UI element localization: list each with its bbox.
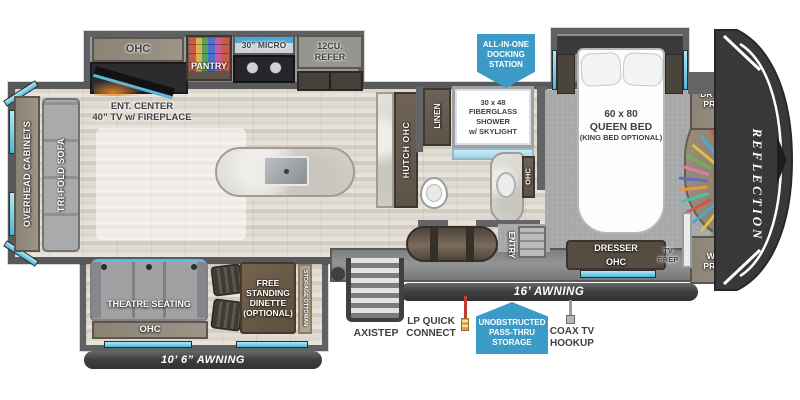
lp-connector-icon [461,318,469,331]
sink-faucet-icon [284,169,289,174]
theatre-cupholder-icon [101,264,107,270]
wall-hutch-bath [416,86,423,152]
shower [452,86,534,148]
bedroom-steps [518,226,546,258]
linen-cabinet [423,88,451,146]
theatre-divider-icon [132,262,135,318]
awning-living-bar: 10’ 6” AWNING [84,351,322,369]
front-cap [680,18,800,302]
pass-thru-badge: UNOBSTRUCTED PASS-THRU STORAGE [476,302,548,354]
bed-slide-window-left-icon [552,50,557,90]
tri-fold-sofa [42,98,80,252]
docking-station-badge: ALL-IN-ONE DOCKING STATION [477,34,535,88]
dinette-table [240,262,296,334]
nightstand-left [557,54,575,94]
coax-connector-icon [566,315,575,324]
pillow-right-icon [622,52,664,87]
dresser-window-icon [580,270,656,278]
theatre-divider2-icon [163,262,166,318]
vanity-sink-icon [496,172,516,198]
axistep-handle-icon [331,267,345,281]
toilet-seat-icon [426,184,442,202]
rv-floorplan: OVERHEAD CABINETS TRI-FOLD SOFA OHC ENT.… [0,0,800,400]
hutch-cabinet [394,92,418,208]
awning-main-bar: 16’ AWNING [400,283,698,301]
refrigerator-drawers-icon [297,71,363,91]
overhead-cabinets [14,96,40,252]
living-ohc-cabinet [92,321,208,339]
theatre-cupholder3-icon [191,264,197,270]
refrigerator [297,35,363,69]
dresser [566,240,666,270]
lp-quick-connect-label: LP QUICK CONNECT [396,314,466,342]
living-window-right-icon [236,341,308,348]
pillow-left-icon [580,52,622,87]
theatre-armrest-right-icon [197,262,206,318]
awning-main-label: 16’ AWNING [514,286,585,298]
lp-leader-line-icon [464,296,467,320]
storage-ottoman [298,264,312,334]
pantry-shelves-icon [189,38,229,72]
fireplace-glow-icon [94,80,142,96]
kitchen-ohc-cabinet [92,37,184,62]
theatre-cupholder2-icon [146,264,152,270]
hutch-counter [376,92,394,208]
entry-cabinet-band-icon [430,228,438,260]
entry-cabinet [406,226,498,262]
range-cooktop [233,55,295,83]
theatre-armrest-left-icon [92,262,101,318]
dinette-chair2-icon [210,298,243,331]
axistep-label: AXISTEP [344,326,408,340]
microwave [233,35,295,55]
living-window-left-icon [104,341,192,348]
entry-cabinet-band2-icon [466,228,474,260]
awning-living-label: 10’ 6” AWNING [161,354,245,366]
dinette-chair-icon [210,263,243,296]
vanity-ohc-cabinet [522,156,535,198]
axistep-steps [346,258,404,322]
